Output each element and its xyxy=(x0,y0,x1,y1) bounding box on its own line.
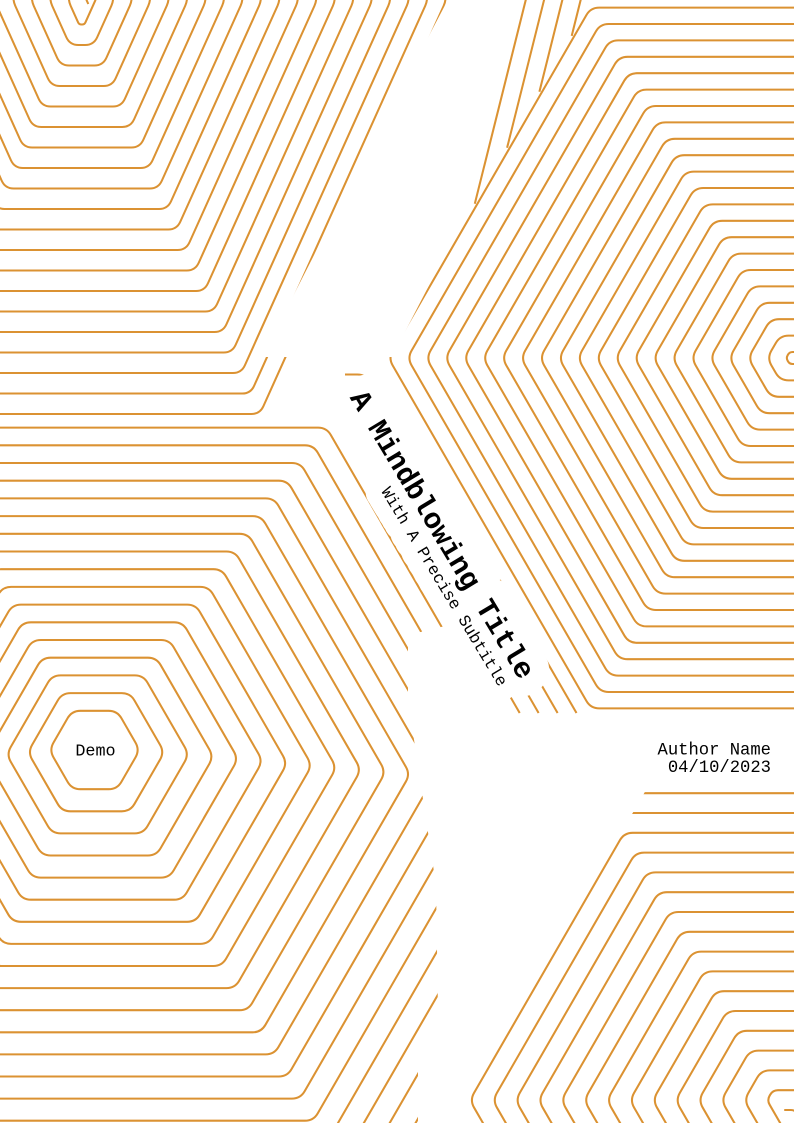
svg-text:04/10/2023: 04/10/2023 xyxy=(668,759,771,778)
svg-text:Demo: Demo xyxy=(75,743,115,762)
svg-text:Author Name: Author Name xyxy=(658,742,771,761)
